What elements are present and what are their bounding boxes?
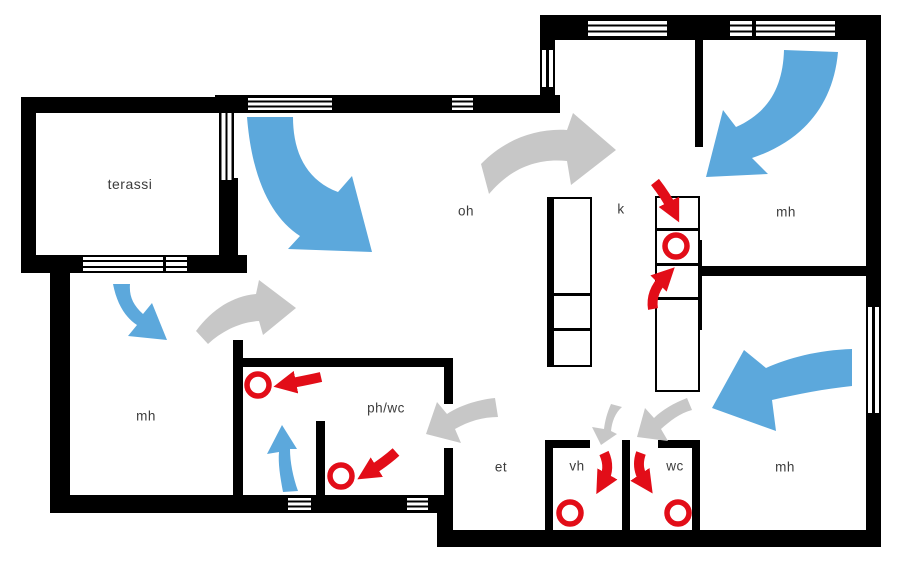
exhaust-air-arrow-phwc-lower	[369, 452, 396, 472]
supply-air-arrow-mh-top	[706, 50, 838, 177]
supply-air-arrow-phwc	[267, 425, 298, 492]
exhaust-valve-vh	[559, 502, 581, 524]
transfer-air-arrow-oh-k	[481, 113, 616, 194]
supply-air-arrow-mh-left	[113, 284, 167, 340]
transfer-air-arrow-vh	[592, 404, 622, 445]
supply-air-arrow-oh	[247, 117, 372, 252]
exhaust-air-arrow-k-lower	[653, 277, 665, 309]
exhaust-valve-k	[665, 235, 687, 257]
supply-air-arrow-mh-right	[712, 349, 852, 431]
airflow-arrows	[0, 0, 900, 562]
transfer-air-arrow-wc	[637, 398, 692, 441]
transfer-air-arrow-phwc	[426, 398, 498, 443]
exhaust-valve-wc	[667, 502, 689, 524]
exhaust-air-arrow-wc	[639, 453, 645, 482]
floor-plan: terassi oh k mh mh ph/wc et vh wc mh	[0, 0, 900, 562]
exhaust-air-arrow-phwc-upper	[287, 377, 321, 384]
transfer-air-arrow-mh-left	[196, 280, 296, 344]
exhaust-valve-phwc-upper	[247, 374, 269, 396]
exhaust-air-arrow-vh	[603, 453, 607, 482]
exhaust-valve-phwc-lower	[330, 465, 352, 487]
exhaust-air-arrow-k-upper	[655, 182, 673, 210]
